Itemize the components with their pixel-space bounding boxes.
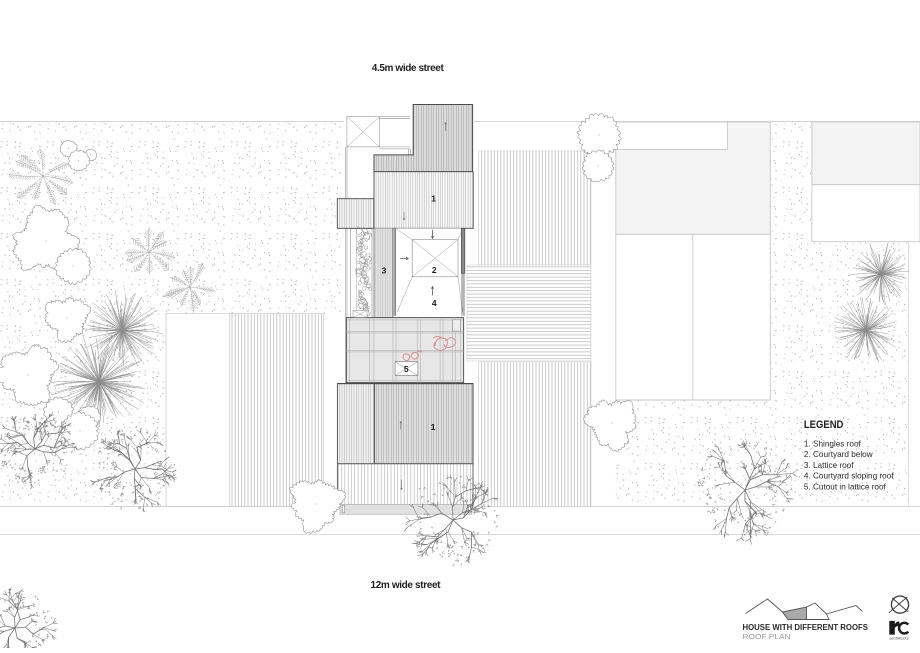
svg-text:3. Lattice roof: 3. Lattice roof — [804, 461, 854, 470]
svg-text:architects: architects — [889, 637, 909, 641]
svg-text:5. Cutout in lattice roof: 5. Cutout in lattice roof — [804, 483, 887, 492]
svg-text:1: 1 — [431, 194, 436, 204]
svg-text:3: 3 — [382, 265, 387, 275]
svg-text:ROOF PLAN: ROOF PLAN — [743, 634, 791, 641]
svg-text:12m wide street: 12m wide street — [371, 580, 442, 591]
svg-text:LEGEND: LEGEND — [804, 419, 844, 431]
svg-text:4.5m wide street: 4.5m wide street — [372, 63, 445, 74]
svg-text:4: 4 — [432, 298, 437, 308]
svg-text:1: 1 — [431, 422, 436, 432]
svg-text:2: 2 — [432, 265, 437, 275]
svg-text:4. Courtyard sloping roof: 4. Courtyard sloping roof — [804, 472, 894, 481]
svg-text:1. Shingles roof: 1. Shingles roof — [804, 439, 862, 448]
svg-text:2. Courtyard below: 2. Courtyard below — [804, 450, 873, 459]
svg-text:HOUSE WITH DIFFERENT ROOFS: HOUSE WITH DIFFERENT ROOFS — [743, 622, 869, 632]
svg-text:5: 5 — [404, 364, 409, 374]
